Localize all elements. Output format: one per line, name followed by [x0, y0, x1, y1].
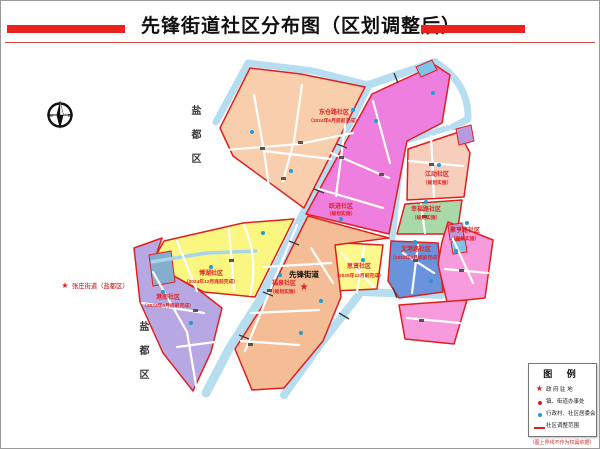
district-map: 东仓路社区 （2024年6月底前完成） 跃进社区 （规划实施） 江动社区 （规划… [1, 1, 600, 449]
region-note: （规划实施） [423, 179, 452, 186]
region-label: 东仓路社区 [319, 108, 349, 116]
patch-violet-top [456, 125, 474, 145]
legend-item-label: 镇、街道办事处 [546, 397, 585, 405]
region-note: （规划实施） [327, 210, 356, 217]
legend-footnote: （图上界线不作为权属依据） [521, 439, 600, 446]
region-label: 江动社区 [425, 170, 449, 178]
region-label: 跃进社区 [329, 202, 353, 210]
region-label: 港南社区 [156, 293, 180, 301]
legend-item: 社区调整范围 [533, 419, 592, 431]
red-line-icon [533, 416, 546, 434]
legend-item-label: 行政村、社区居委会 [546, 409, 596, 417]
street-seat-name: 先锋街道 [289, 269, 319, 279]
region-label: 博湖社区 [199, 269, 223, 277]
region-label: 聚亨路社区 [449, 226, 480, 234]
landmark-label: 张庄街道（盐都区） [72, 281, 129, 290]
compass-icon: W E [47, 101, 73, 129]
region-label: 幸福路社区 [411, 205, 441, 213]
region-note: （2025年12月前完成） [334, 272, 384, 279]
region-note: （2024年6月底前完成） [390, 254, 442, 261]
patch-teal [149, 251, 175, 286]
government-seat-star-icon: ★ [300, 282, 309, 293]
legend-item-label: 社区调整范围 [546, 421, 579, 429]
region-note: （2024年6月底前完成） [142, 302, 194, 309]
landmark-star-icon: ★ [61, 281, 68, 290]
legend: 图 例 ★ 政 府 驻 地 镇、街道办事处 行政村、社区居委会 社区调整范围 [528, 363, 597, 437]
legend-title: 图 例 [533, 367, 592, 380]
region-note: （规划实施） [270, 288, 299, 295]
neighbor-district-lower: 盐都区 [135, 321, 150, 393]
region-note: （2024年12月底前完成） [184, 278, 238, 285]
region-label: 文港路社区 [400, 245, 431, 253]
region-note: （规划实施） [451, 235, 480, 242]
region-label: 福泉社区 [271, 279, 296, 287]
neighbor-district-upper: 盐都区 [187, 105, 202, 177]
region-note: （2024年6月底前完成） [308, 117, 360, 124]
compass-east-label: E [68, 113, 71, 118]
legend-item-label: 政 府 驻 地 [546, 385, 573, 393]
map-page: 先锋街道社区分布图（区划调整后） [0, 0, 600, 449]
region-juhenglu [438, 222, 493, 302]
region-label: 思贤社区 [347, 262, 371, 270]
region-note: （规划实施） [412, 214, 441, 221]
